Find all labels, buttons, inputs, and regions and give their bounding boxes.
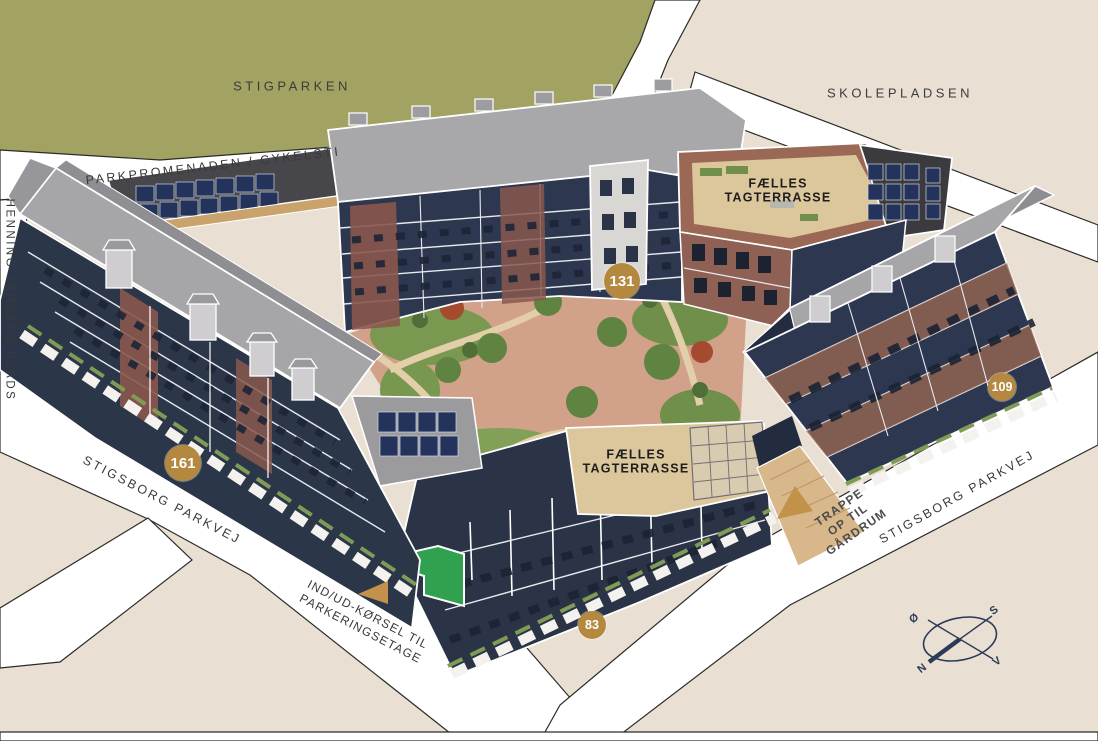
unit-count-badge-131: 131: [604, 263, 640, 299]
solar-panels-northeast: [868, 164, 940, 220]
roof-terrace-label-north: FÆLLES TAGTERRASSE: [725, 177, 832, 206]
plads-street-label: HENNING JENSENS PLADS: [2, 199, 17, 402]
roof-terrace-label-south: FÆLLES TAGTERRASSE: [583, 448, 690, 477]
plaza-label: SKOLEPLADSEN: [827, 86, 973, 103]
unit-count-badge-83: 83: [578, 611, 606, 639]
north-brick-bay: [500, 184, 546, 304]
road-bottom-strip: [0, 732, 1098, 741]
unit-count-badge-109: 109: [988, 373, 1016, 401]
park-label: STIGPARKEN: [233, 79, 351, 96]
site-plan: Ø S N V STIGPARKEN SKOLEPLADSEN PARKPROM…: [0, 0, 1098, 741]
site-plan-drawing: Ø S N V: [0, 0, 1098, 741]
unit-count-badge-161: 161: [165, 445, 201, 481]
